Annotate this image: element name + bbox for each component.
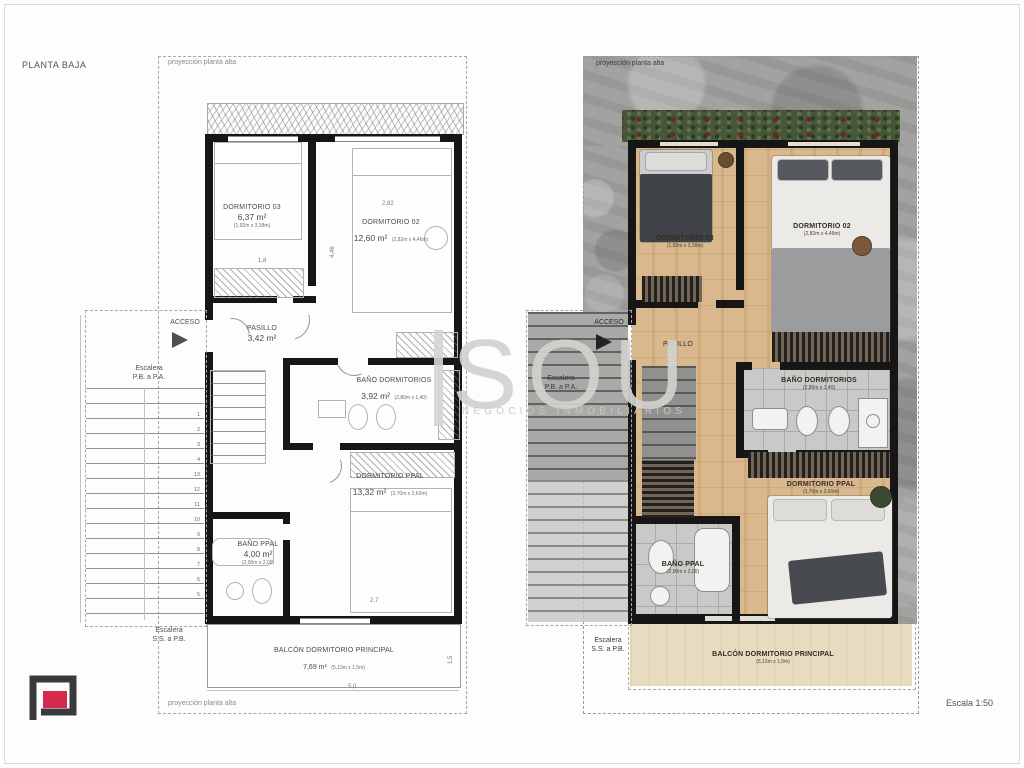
- side-table: [718, 152, 734, 168]
- projection-label-bottom-left: proyección planta alta: [168, 700, 236, 707]
- room-dims: (2,80m x 1,40): [395, 395, 427, 401]
- room-dims: (5,13m x 1,5m): [648, 659, 898, 666]
- room-label: PASILLO 3,42 m²: [212, 324, 312, 344]
- shower-drain: [866, 414, 880, 428]
- room-name: DORMITORIO PPAL: [752, 480, 890, 489]
- dim-label: 2,7: [370, 598, 378, 604]
- wall-segment: [283, 358, 290, 448]
- planter-drawing: [207, 103, 464, 135]
- stair-number: 12: [188, 487, 200, 493]
- wall-segment: [283, 512, 290, 524]
- stair-divider: [144, 388, 145, 620]
- stair-treads: [86, 388, 204, 620]
- room-name: DORMITORIO PPAL: [322, 472, 458, 481]
- room-area: 13,32 m²: [353, 487, 387, 497]
- stair-number: 6: [188, 577, 200, 583]
- room-name: PASILLO: [212, 324, 312, 333]
- window: [705, 616, 775, 621]
- window: [788, 142, 860, 146]
- toilet-drawing: [348, 404, 368, 430]
- pillow: [774, 500, 826, 520]
- wall-segment: [736, 362, 744, 458]
- room-dims: (3,70m x 3,60m): [752, 489, 890, 496]
- wall-segment: [283, 443, 313, 450]
- dim-label: 1,5: [448, 656, 454, 664]
- plan-title: PLANTA BAJA: [22, 60, 86, 70]
- room-dims: (1,92m x 3,38m): [196, 223, 308, 230]
- room-name: DORMITORIO 02: [752, 222, 892, 231]
- hedge-planter: [622, 110, 900, 142]
- room-dims: (2,80m x 1,40): [748, 385, 890, 392]
- wall-segment: [732, 516, 740, 622]
- watermark-bar: [434, 330, 443, 426]
- room-dims: (5,13m x 1,5m): [331, 665, 365, 671]
- toilet: [796, 406, 818, 436]
- room-label: BAÑO DORMITORIOS (2,80m x 1,40): [748, 376, 890, 392]
- stair-treads-interior: [210, 370, 266, 464]
- stairs-lower-label-1: Escalera: [130, 626, 208, 635]
- room-label: DORMITORIO 02 (2,82m x 4,46m): [752, 222, 892, 238]
- sink-drawing: [226, 582, 244, 600]
- wall-segment: [308, 134, 316, 286]
- room-label: DORMITORIO 03 (1,92m x 3,38m): [632, 234, 738, 250]
- room-label: BAÑO PPAL 4,00 m² (2,00m x 2,00): [210, 540, 306, 567]
- dim-label: 4,46: [330, 246, 336, 258]
- stair-number: 13: [188, 472, 200, 478]
- wardrobe: [642, 276, 702, 302]
- pillow: [832, 160, 882, 180]
- room-area: 3,42 m²: [212, 333, 312, 344]
- wall-segment: [716, 300, 744, 308]
- stairs-lower-label-2: S.S. a P.B.: [130, 635, 208, 644]
- room-name: DORMITORIO 02: [328, 218, 454, 227]
- room-name: DORMITORIO 03: [632, 234, 738, 243]
- room-label: BAÑO PPAL (2,00m x 2,00): [634, 560, 732, 576]
- stairs-upper-label-1: Escalera: [110, 364, 188, 373]
- wall-segment: [205, 512, 290, 519]
- projection-label-top-right: proyección planta alta: [596, 60, 664, 67]
- dim-label: 1,8: [258, 258, 266, 264]
- room-name: DORMITORIO 03: [196, 203, 308, 212]
- bed-blanket: [772, 248, 890, 334]
- wardrobe: [772, 332, 890, 362]
- wall-segment: [736, 140, 744, 290]
- room-dims: (2,00m x 2,00): [634, 569, 732, 576]
- logo-icon: [26, 672, 80, 722]
- room-dims: (3,70m x 3,60m): [391, 491, 427, 497]
- room-name: BALCÓN DORMITORIO PRINCIPAL: [230, 646, 438, 655]
- room-label: DORMITORIO PPAL 13,32 m² (3,70m x 3,60m): [322, 472, 458, 502]
- stair-number: 11: [188, 502, 200, 508]
- bidet-drawing: [376, 404, 396, 430]
- stairs-upper-label-2: P.B. a P.A.: [110, 373, 188, 382]
- room-name: BAÑO PPAL: [634, 560, 732, 569]
- wall-segment: [780, 362, 898, 370]
- wardrobe-drawing: [214, 268, 304, 298]
- room-dims: (2,82m x 4,46m): [392, 237, 428, 243]
- toilet-drawing: [252, 578, 272, 604]
- room-area: 6,37 m²: [196, 212, 308, 223]
- room-area: 3,92 m²: [361, 391, 390, 401]
- pillow: [778, 160, 828, 180]
- wall-segment: [368, 358, 462, 365]
- pillow-drawing: [352, 148, 452, 176]
- room-area: 12,60 m²: [354, 233, 388, 243]
- watermark-subtitle: NEGOCIOS INMOBILIARIOS: [462, 406, 686, 417]
- bidet: [828, 406, 850, 436]
- wall-segment: [283, 358, 338, 365]
- stair-number: 1: [188, 412, 200, 418]
- room-name: BALCÓN DORMITORIO PRINCIPAL: [648, 650, 898, 659]
- dimension-line: [207, 690, 459, 691]
- room-area: 4,00 m²: [210, 549, 306, 560]
- pillow: [646, 153, 706, 170]
- room-label: BALCÓN DORMITORIO PRINCIPAL 7,69 m² (5,1…: [230, 646, 438, 676]
- stair-number: 10: [188, 517, 200, 523]
- dim-label: 2,82: [382, 201, 394, 207]
- stair-number: 3: [188, 442, 200, 448]
- bed-blanket: [640, 174, 712, 242]
- side-table: [852, 236, 872, 256]
- company-logo: [26, 672, 80, 722]
- wall-segment: [340, 443, 462, 450]
- stair-number: 9: [188, 532, 200, 538]
- room-dims: (2,00m x 2,00): [210, 560, 306, 567]
- stair-number: 8: [188, 547, 200, 553]
- stair-number: 7: [188, 562, 200, 568]
- acceso-arrow-icon: [172, 332, 188, 348]
- dimension-line: [80, 315, 81, 623]
- stairs-lower-label-1: Escalera: [578, 636, 638, 645]
- room-name: BAÑO PPAL: [210, 540, 306, 549]
- stairs-lower-label-2: S.S. a P.B.: [578, 645, 638, 654]
- window: [660, 142, 718, 146]
- room-name: BAÑO DORMITORIOS: [748, 376, 890, 385]
- stair-number: 5: [188, 592, 200, 598]
- wardrobe-drawing: [396, 332, 458, 358]
- stair-treads: [528, 480, 628, 622]
- projection-label-top-left: proyección planta alta: [168, 59, 236, 66]
- wardrobe: [748, 452, 890, 478]
- stair-number: 4: [188, 457, 200, 463]
- sink: [650, 586, 670, 606]
- stair-number: 2: [188, 427, 200, 433]
- room-label: DORMITORIO 02 12,60 m² (2,82m x 4,46m): [328, 218, 454, 248]
- acceso-label: ACCESO: [160, 318, 210, 327]
- sink: [752, 408, 788, 430]
- room-area: 7,69 m²: [303, 664, 327, 671]
- window: [335, 136, 440, 142]
- scale-label: Escala 1:50: [946, 698, 993, 708]
- room-label: DORMITORIO PPAL (3,70m x 3,60m): [752, 480, 890, 496]
- pillow-drawing: [214, 142, 302, 164]
- room-dims: (1,92m x 3,38m): [632, 243, 738, 250]
- floorplan-sheet: PLANTA BAJA proyección planta alta proye…: [0, 0, 1024, 768]
- wall-segment: [628, 140, 636, 325]
- watermark-logo: SOU: [452, 330, 694, 418]
- room-label: DORMITORIO 03 6,37 m² (1,92m x 3,38m): [196, 203, 308, 230]
- room-dims: (2,82m x 4,46m): [752, 231, 892, 238]
- room-label: BALCÓN DORMITORIO PRINCIPAL (5,13m x 1,5…: [648, 650, 898, 666]
